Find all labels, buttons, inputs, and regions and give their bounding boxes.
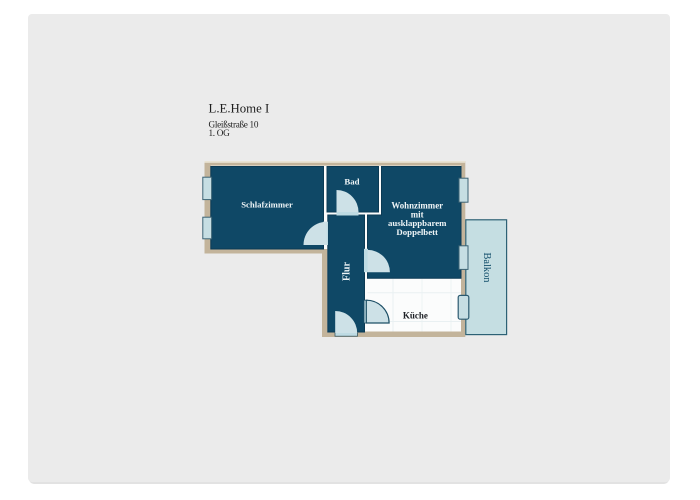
svg-text:L.E.Home I: L.E.Home I — [209, 101, 270, 115]
svg-text:Flur: Flur — [342, 261, 353, 280]
svg-text:Doppelbett: Doppelbett — [396, 227, 438, 237]
svg-text:Küche: Küche — [403, 311, 428, 321]
svg-text:Balkon: Balkon — [481, 252, 492, 283]
svg-text:Bad: Bad — [344, 177, 359, 187]
svg-text:Schlafzimmer: Schlafzimmer — [241, 199, 293, 209]
svg-text:1. OG: 1. OG — [209, 128, 231, 138]
